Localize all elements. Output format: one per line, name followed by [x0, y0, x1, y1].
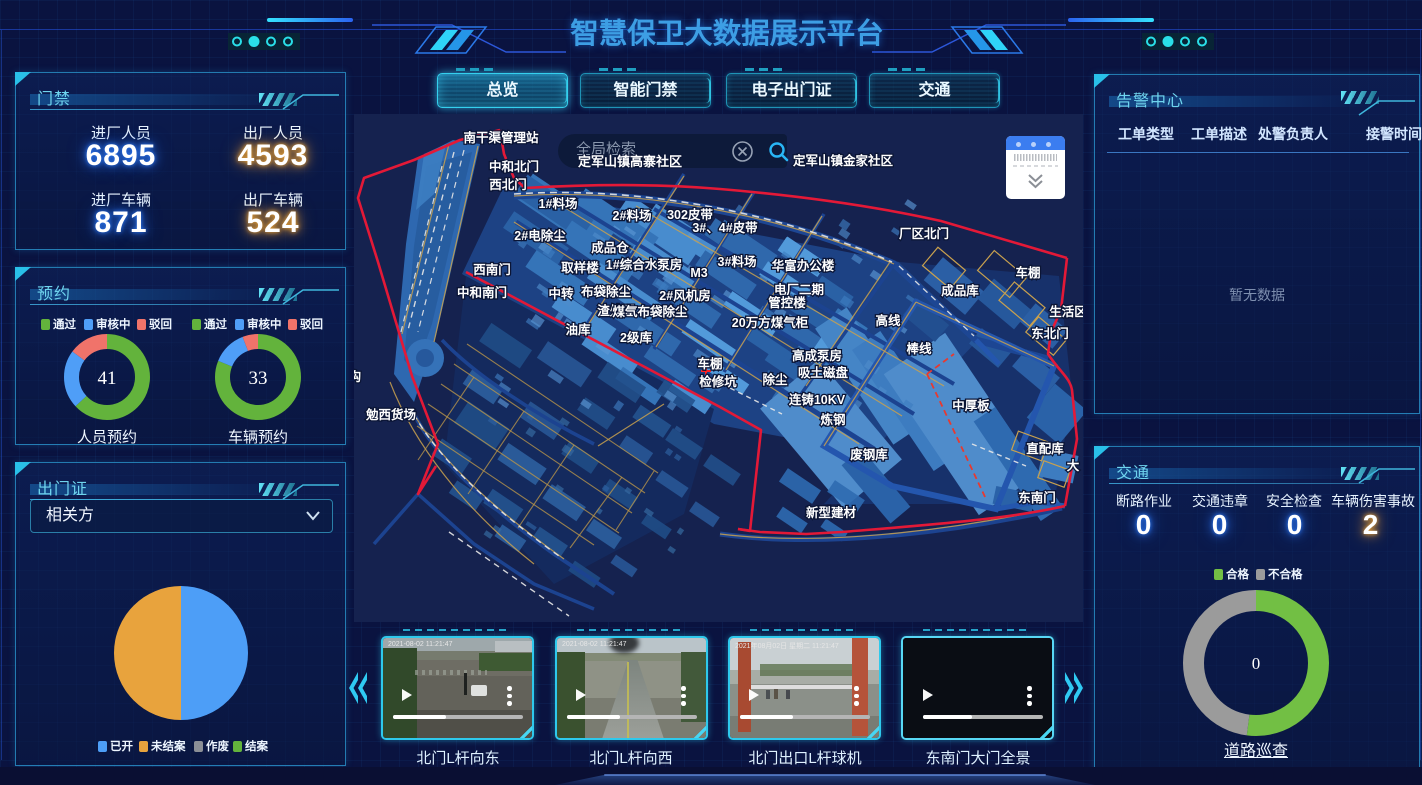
svg-text:41: 41	[98, 368, 117, 389]
svg-text:0: 0	[1252, 654, 1261, 673]
svg-text:33: 33	[249, 368, 268, 389]
